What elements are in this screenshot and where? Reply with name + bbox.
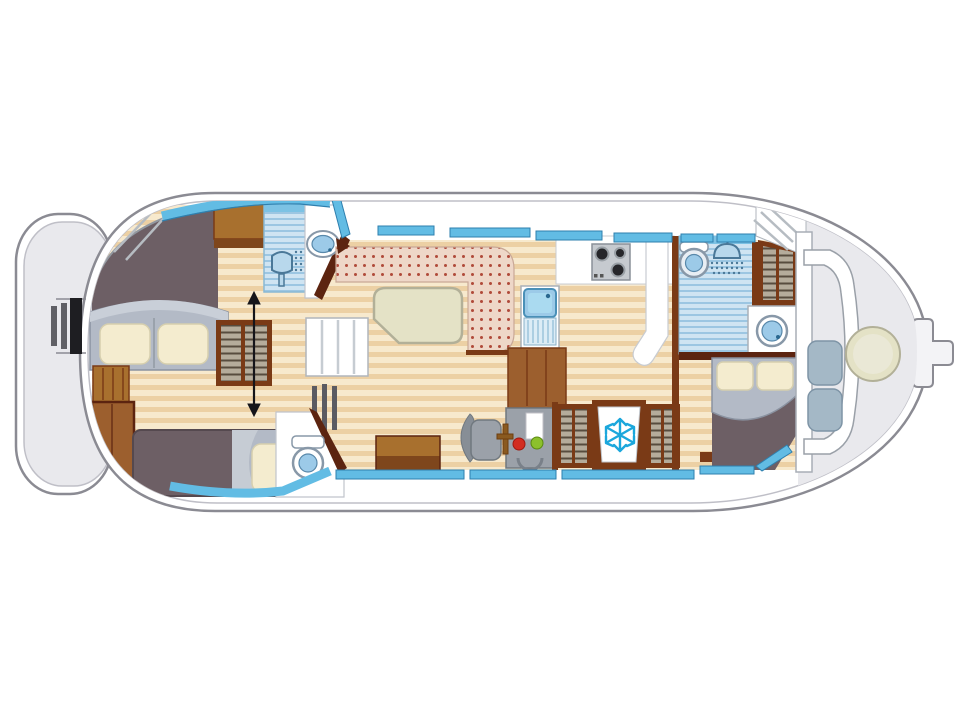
window-strip bbox=[614, 233, 672, 242]
console-display bbox=[526, 413, 543, 439]
pillow bbox=[100, 324, 150, 364]
pillow bbox=[158, 324, 208, 364]
pillow bbox=[757, 362, 793, 390]
window-strip bbox=[450, 228, 530, 237]
floorplan-canvas bbox=[0, 0, 960, 720]
aft-washbasin bbox=[748, 306, 798, 356]
window-strip bbox=[681, 234, 713, 242]
bathroom-wall bbox=[672, 236, 679, 470]
window-strip bbox=[470, 470, 556, 479]
forward-counter bbox=[214, 203, 268, 248]
forward-shower bbox=[264, 204, 308, 292]
forward-companionway-steps bbox=[306, 318, 368, 376]
window-strip bbox=[562, 470, 694, 479]
aft-bathroom bbox=[679, 236, 753, 354]
interior bbox=[90, 197, 917, 501]
shelf-cabinet-left bbox=[556, 404, 592, 468]
galley-storage-block bbox=[508, 348, 566, 408]
toilet-icon bbox=[680, 242, 708, 277]
door-sill bbox=[700, 452, 712, 462]
galley-sink bbox=[521, 286, 559, 350]
single-berth bbox=[133, 430, 293, 496]
pillow bbox=[717, 362, 753, 390]
v-double-berth bbox=[90, 300, 228, 370]
helm-seat bbox=[461, 414, 501, 462]
boat-floorplan-svg bbox=[0, 0, 960, 720]
aft-deck-table-top bbox=[853, 334, 893, 374]
window-strip bbox=[717, 234, 755, 242]
forward-wardrobe bbox=[216, 320, 272, 386]
refrigerator bbox=[592, 400, 646, 470]
window-strip bbox=[336, 470, 464, 479]
stove-burners-icon bbox=[592, 244, 630, 280]
window-strip bbox=[378, 226, 434, 235]
bench-cushion bbox=[808, 341, 842, 385]
window-strip bbox=[536, 231, 602, 240]
window-strip bbox=[700, 466, 754, 474]
bench-cushion bbox=[808, 389, 842, 431]
